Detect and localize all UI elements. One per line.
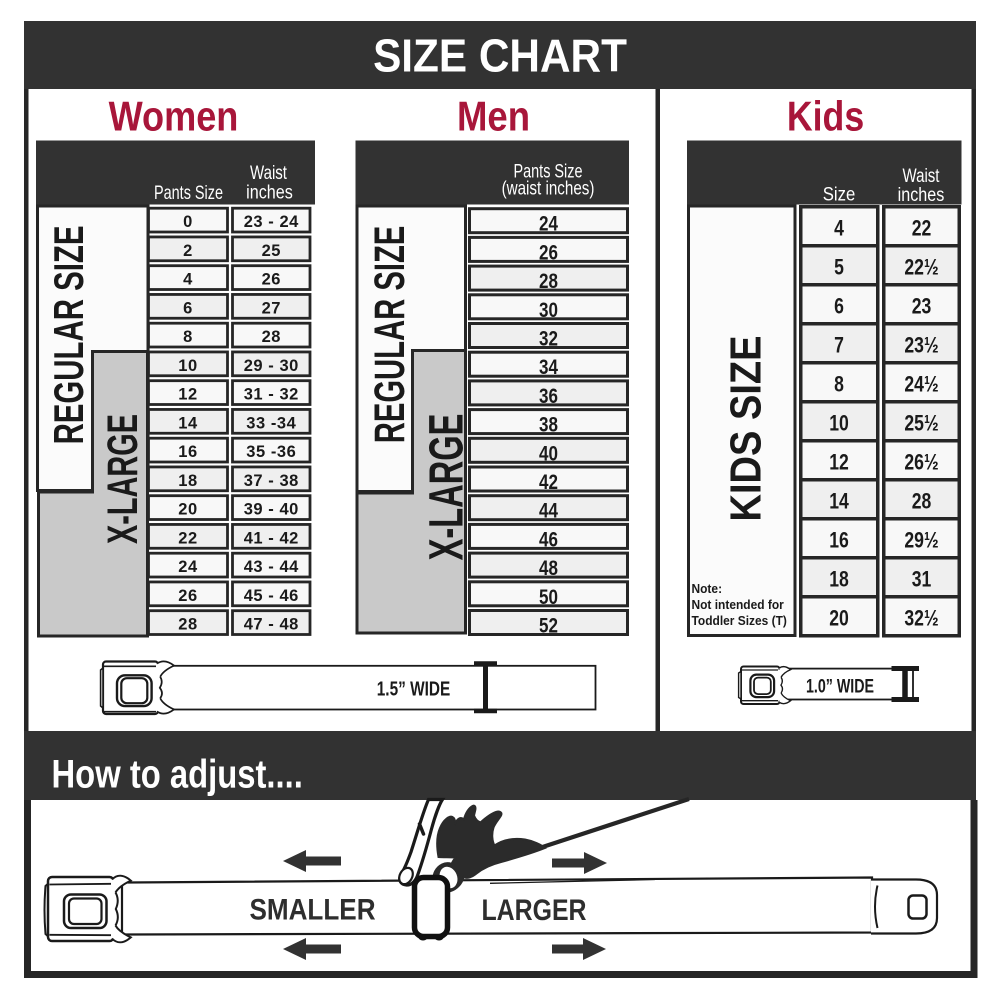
svg-text:inches: inches bbox=[898, 184, 945, 206]
svg-text:6: 6 bbox=[834, 295, 844, 319]
svg-text:31: 31 bbox=[912, 568, 932, 592]
svg-text:45 - 46: 45 - 46 bbox=[244, 587, 299, 605]
svg-text:Kids: Kids bbox=[787, 94, 864, 140]
svg-text:28: 28 bbox=[539, 270, 558, 293]
svg-text:22½: 22½ bbox=[904, 256, 938, 280]
svg-text:4: 4 bbox=[183, 271, 193, 289]
svg-text:REGULAR SIZE: REGULAR SIZE bbox=[365, 226, 413, 444]
svg-text:27: 27 bbox=[262, 299, 281, 317]
svg-text:20: 20 bbox=[178, 501, 197, 519]
svg-text:26: 26 bbox=[539, 242, 558, 265]
svg-text:31 - 32: 31 - 32 bbox=[244, 386, 299, 404]
svg-text:52: 52 bbox=[539, 615, 558, 638]
svg-text:4: 4 bbox=[834, 217, 844, 241]
svg-text:30: 30 bbox=[539, 299, 558, 322]
svg-text:24: 24 bbox=[539, 213, 558, 236]
svg-text:2: 2 bbox=[183, 242, 193, 260]
svg-text:6: 6 bbox=[183, 299, 193, 317]
svg-text:43 - 44: 43 - 44 bbox=[244, 558, 299, 576]
svg-text:32: 32 bbox=[539, 328, 558, 351]
svg-text:8: 8 bbox=[834, 373, 844, 397]
svg-text:23: 23 bbox=[912, 295, 932, 319]
svg-text:18: 18 bbox=[178, 472, 197, 490]
svg-text:40: 40 bbox=[539, 443, 558, 466]
svg-text:REGULAR SIZE: REGULAR SIZE bbox=[45, 226, 93, 445]
svg-text:24½: 24½ bbox=[904, 373, 938, 397]
svg-text:28: 28 bbox=[912, 490, 932, 514]
svg-text:23½: 23½ bbox=[904, 334, 938, 358]
svg-text:26: 26 bbox=[262, 271, 281, 289]
svg-text:How to adjust....: How to adjust.... bbox=[52, 751, 303, 796]
svg-text:29½: 29½ bbox=[904, 529, 938, 553]
svg-text:X-LARGE: X-LARGE bbox=[98, 414, 146, 544]
svg-text:36: 36 bbox=[539, 385, 558, 408]
svg-text:22: 22 bbox=[912, 217, 932, 241]
svg-text:12: 12 bbox=[178, 386, 197, 404]
svg-text:inches: inches bbox=[246, 181, 293, 203]
svg-text:8: 8 bbox=[183, 328, 193, 346]
svg-text:10: 10 bbox=[178, 357, 197, 375]
svg-text:0: 0 bbox=[183, 213, 193, 231]
svg-text:47 - 48: 47 - 48 bbox=[244, 616, 299, 634]
svg-text:24: 24 bbox=[178, 558, 198, 576]
svg-text:32½: 32½ bbox=[904, 607, 938, 631]
svg-text:29 - 30: 29 - 30 bbox=[244, 357, 299, 375]
svg-text:25½: 25½ bbox=[904, 412, 938, 436]
svg-text:Note:: Note: bbox=[692, 582, 723, 597]
svg-text:38: 38 bbox=[539, 414, 558, 437]
svg-text:7: 7 bbox=[834, 334, 844, 358]
svg-text:Pants Size: Pants Size bbox=[154, 182, 223, 203]
svg-text:5: 5 bbox=[834, 256, 844, 280]
svg-text:14: 14 bbox=[178, 414, 198, 432]
svg-text:10: 10 bbox=[829, 412, 849, 436]
svg-text:Size: Size bbox=[823, 184, 856, 205]
svg-text:26: 26 bbox=[178, 587, 197, 605]
svg-text:KIDS SIZE: KIDS SIZE bbox=[721, 335, 770, 521]
svg-text:48: 48 bbox=[539, 557, 558, 580]
svg-text:X-LARGE: X-LARGE bbox=[419, 414, 473, 561]
svg-text:14: 14 bbox=[829, 490, 849, 514]
svg-text:39 - 40: 39 - 40 bbox=[244, 501, 299, 519]
svg-text:37 - 38: 37 - 38 bbox=[244, 472, 299, 490]
svg-text:23 - 24: 23 - 24 bbox=[244, 213, 299, 231]
svg-text:35 -36: 35 -36 bbox=[246, 443, 296, 461]
svg-text:33 -34: 33 -34 bbox=[246, 414, 296, 432]
svg-text:Not intended for: Not intended for bbox=[692, 598, 784, 613]
svg-text:Toddler Sizes (T): Toddler Sizes (T) bbox=[692, 614, 787, 629]
svg-text:25: 25 bbox=[262, 242, 281, 260]
svg-text:16: 16 bbox=[178, 443, 197, 461]
svg-text:46: 46 bbox=[539, 529, 558, 552]
svg-text:1.0” WIDE: 1.0” WIDE bbox=[806, 676, 874, 697]
svg-text:Men: Men bbox=[457, 93, 530, 140]
svg-text:20: 20 bbox=[829, 607, 849, 631]
svg-text:42: 42 bbox=[539, 471, 558, 494]
svg-text:34: 34 bbox=[539, 357, 558, 380]
svg-text:1.5” WIDE: 1.5” WIDE bbox=[377, 678, 451, 700]
svg-text:26½: 26½ bbox=[904, 451, 938, 475]
svg-text:16: 16 bbox=[829, 529, 849, 553]
svg-text:Women: Women bbox=[109, 94, 239, 140]
svg-text:50: 50 bbox=[539, 586, 558, 609]
svg-text:SMALLER: SMALLER bbox=[249, 893, 375, 926]
svg-text:28: 28 bbox=[262, 328, 281, 346]
svg-text:44: 44 bbox=[539, 500, 558, 523]
svg-text:12: 12 bbox=[829, 451, 849, 475]
svg-text:LARGER: LARGER bbox=[481, 893, 586, 927]
svg-text:28: 28 bbox=[178, 616, 197, 634]
svg-text:22: 22 bbox=[178, 529, 197, 547]
svg-text:18: 18 bbox=[829, 568, 849, 592]
svg-text:SIZE CHART: SIZE CHART bbox=[373, 31, 627, 82]
svg-text:(waist inches): (waist inches) bbox=[502, 177, 595, 199]
svg-text:41 - 42: 41 - 42 bbox=[244, 529, 299, 547]
